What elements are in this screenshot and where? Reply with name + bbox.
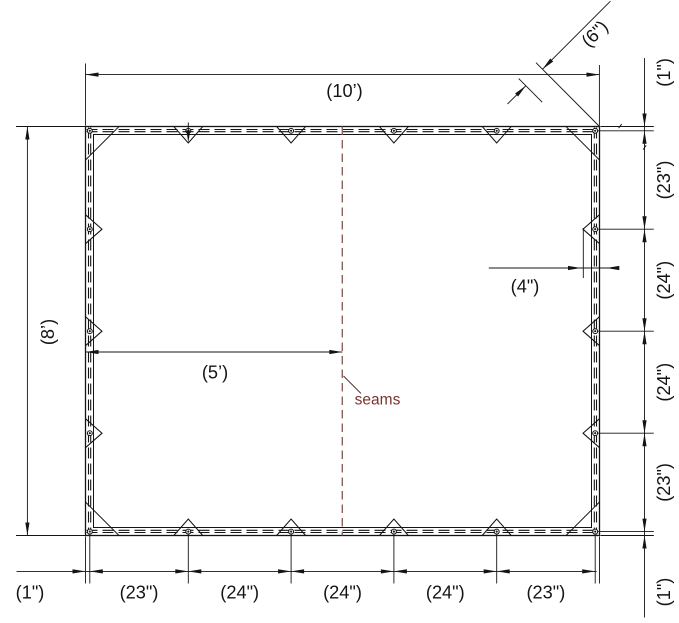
svg-text:(1"): (1"): [654, 578, 674, 607]
svg-text:(8’): (8’): [38, 319, 58, 345]
svg-text:(24"): (24"): [323, 583, 362, 603]
svg-text:(23"): (23"): [120, 583, 159, 603]
svg-text:(4"): (4"): [511, 277, 540, 297]
svg-text:(1"): (1"): [16, 583, 45, 603]
svg-text:(24"): (24"): [654, 363, 674, 402]
svg-text:(24"): (24"): [654, 261, 674, 300]
svg-text:(1"): (1"): [654, 58, 674, 87]
svg-text:(24"): (24"): [220, 583, 259, 603]
svg-text:(5’): (5’): [202, 363, 228, 383]
svg-text:(23"): (23"): [654, 161, 674, 200]
svg-text:(23"): (23"): [654, 463, 674, 502]
svg-text:seams: seams: [355, 392, 401, 409]
svg-text:(24"): (24"): [426, 583, 465, 603]
svg-text:(10’): (10’): [326, 81, 362, 101]
svg-text:(23"): (23"): [526, 583, 565, 603]
